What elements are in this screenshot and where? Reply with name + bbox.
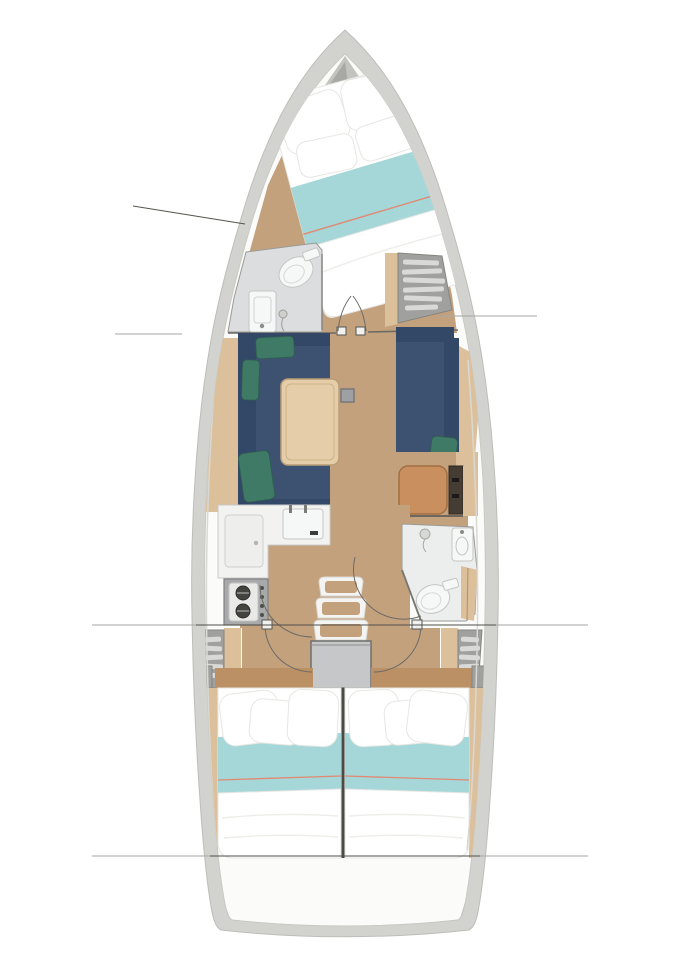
locker-wood-trim (385, 253, 398, 327)
faucet-icon (460, 530, 464, 534)
companionway (305, 575, 377, 688)
sink-faucet (289, 505, 292, 513)
shelf-slat (461, 637, 479, 643)
saloon-table (281, 379, 339, 465)
port-headboard (215, 668, 313, 690)
interior (197, 56, 488, 927)
mast-step (341, 389, 354, 402)
nav-cabinet (449, 466, 463, 514)
shower-head-icon (420, 529, 430, 539)
green-cushion (256, 336, 295, 359)
aft-cabins (197, 666, 488, 858)
step-tread (320, 624, 362, 637)
bow-callout-line (133, 206, 245, 224)
step-tread (322, 602, 360, 615)
pillow (287, 689, 340, 748)
sink-drain (310, 531, 318, 535)
stove-knob (260, 613, 264, 617)
aft-berth-starboard (345, 688, 469, 858)
starboard-bench-arm (396, 327, 454, 342)
galley-stove (224, 579, 268, 625)
aft-berth-port (218, 688, 341, 858)
cabinet-knob (452, 478, 459, 482)
sink-faucet (304, 505, 307, 513)
hatch-pull (254, 541, 258, 545)
yacht-floor-plan (0, 0, 684, 960)
galley-worktop-hatch (225, 515, 263, 567)
door-stub (356, 327, 365, 335)
berth-duvet (345, 789, 469, 858)
starboard-headboard (371, 668, 479, 690)
faucet-icon (260, 324, 264, 328)
berth-duvet (218, 789, 341, 858)
step-tread (325, 581, 357, 593)
shower-head-icon (279, 310, 287, 318)
boat-layout-page (0, 0, 684, 960)
green-cushion (238, 450, 276, 503)
pillow (405, 689, 469, 748)
cabinet-knob (452, 494, 459, 498)
green-cushion (241, 360, 259, 401)
engine-box (311, 641, 371, 688)
shelf-slat (203, 637, 221, 643)
